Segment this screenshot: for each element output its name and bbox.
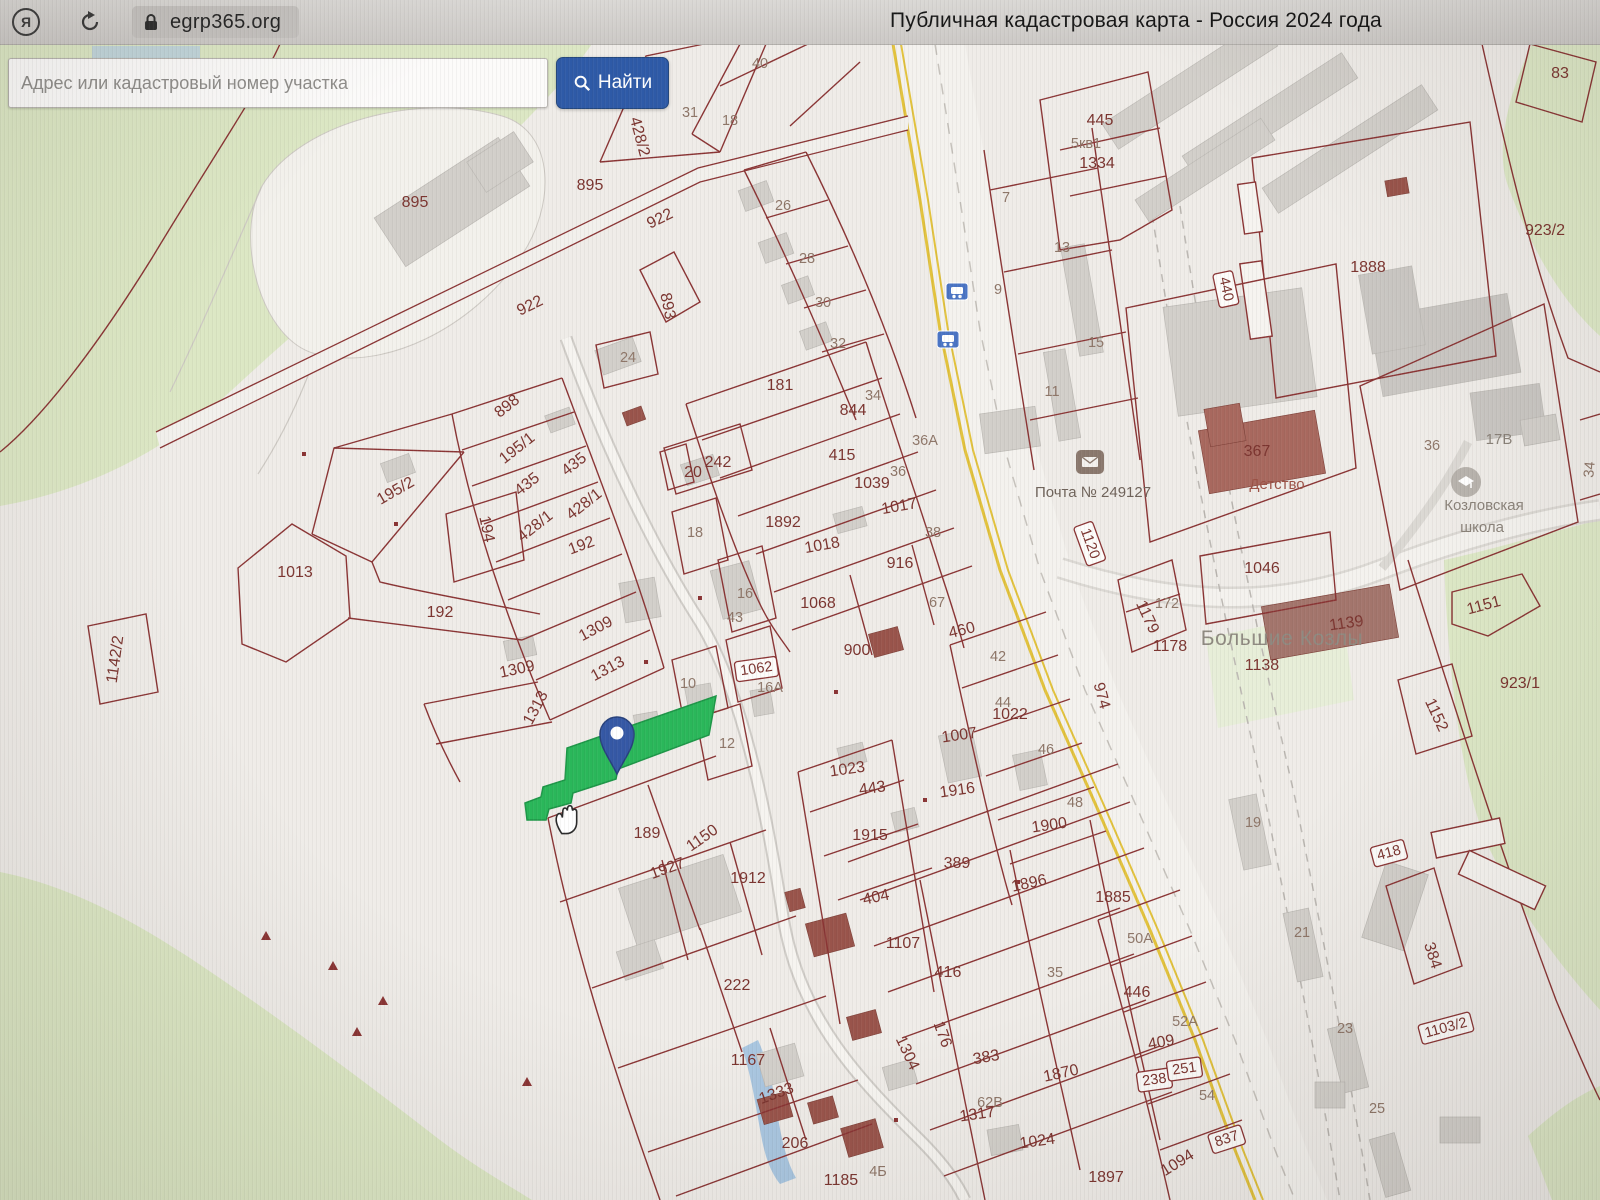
map-label: 36 bbox=[890, 464, 906, 480]
map-label: 34 bbox=[1581, 461, 1598, 478]
map-label: 1138 bbox=[1245, 657, 1280, 674]
map-label: 31 bbox=[682, 105, 698, 121]
map-label: 67 bbox=[929, 595, 945, 611]
map-label: 206 bbox=[782, 1135, 809, 1152]
map-label: 23 bbox=[1337, 1021, 1353, 1037]
map-label: 189 bbox=[634, 825, 661, 842]
map-label: 445 bbox=[1087, 112, 1114, 129]
map-label: 1039 bbox=[854, 475, 890, 492]
cadastral-map[interactable]: 403118428/289589592292289326283032241813… bbox=[0, 0, 1600, 1200]
map-label: 172 bbox=[1155, 596, 1179, 612]
map-label: 1178 bbox=[1153, 638, 1188, 655]
map-label: 1107 bbox=[886, 935, 921, 952]
map-label: 25 bbox=[1369, 1101, 1385, 1117]
screenshot-stage: 403118428/289589592292289326283032241813… bbox=[0, 0, 1600, 1200]
map-label: 54 bbox=[1199, 1088, 1215, 1104]
map-label: 7 bbox=[1002, 190, 1010, 206]
url-text: egrp365.org bbox=[170, 11, 281, 34]
search-button-label: Найти bbox=[598, 72, 652, 94]
address-bar[interactable]: egrp365.org bbox=[132, 6, 299, 38]
map-label: 16 bbox=[737, 586, 753, 602]
map-label: 916 bbox=[887, 555, 914, 572]
map-label: 416 bbox=[935, 964, 962, 981]
map-label: 42 bbox=[990, 649, 1006, 665]
map-label: 181 bbox=[767, 377, 794, 394]
map-label: 238 bbox=[1141, 1070, 1167, 1089]
post-office-icon bbox=[1076, 450, 1104, 474]
map-label: 52А bbox=[1172, 1014, 1198, 1030]
search-button[interactable]: Найти bbox=[556, 57, 669, 109]
map-label: 1892 bbox=[765, 514, 801, 531]
map-label: 1013 bbox=[277, 564, 313, 581]
map-label: 46 bbox=[1038, 742, 1054, 758]
school-icon bbox=[1451, 467, 1481, 497]
map-label: 40 bbox=[752, 56, 768, 72]
map-label: 9 bbox=[994, 282, 1002, 298]
map-label: 35 bbox=[1047, 965, 1063, 981]
map-label: 36А bbox=[912, 433, 938, 449]
map-label: 28 bbox=[799, 251, 815, 267]
map-label: 1912 bbox=[730, 870, 766, 887]
map-label: 50А bbox=[1127, 931, 1153, 947]
map-label: 48 bbox=[1067, 795, 1083, 811]
map-label: 1046 bbox=[1244, 560, 1280, 577]
map-label: 1022 bbox=[992, 706, 1028, 723]
map-label: 1334 bbox=[1079, 155, 1115, 172]
bus-stop-icon bbox=[937, 331, 959, 348]
search-icon bbox=[573, 74, 591, 92]
map-label: 895 bbox=[402, 194, 429, 211]
map-label: 923/1 bbox=[1500, 675, 1540, 692]
map-label: 24 bbox=[620, 350, 636, 366]
map-label: 415 bbox=[829, 447, 856, 464]
map-label: 4Б bbox=[869, 1164, 887, 1180]
map-label: школа bbox=[1460, 519, 1505, 536]
reload-icon[interactable] bbox=[78, 10, 102, 34]
map-label: 11 bbox=[1044, 384, 1059, 400]
map-label: 192 bbox=[427, 604, 454, 621]
browser-logo-icon[interactable]: Я bbox=[12, 8, 40, 36]
map-label: 18 bbox=[722, 113, 738, 129]
map-label: 1885 bbox=[1095, 889, 1131, 906]
map-label: 18 bbox=[687, 525, 703, 541]
map-label: 38 bbox=[925, 525, 941, 541]
map-label: 83 bbox=[1551, 65, 1569, 82]
map-label: Детство bbox=[1249, 476, 1304, 493]
map-label: 43 bbox=[727, 610, 743, 626]
map-label: 367 bbox=[1244, 443, 1271, 460]
map-label: 242 bbox=[705, 454, 732, 471]
map-label: 895 bbox=[577, 177, 604, 194]
map-label: 26 bbox=[775, 198, 791, 214]
map-label: 923/2 bbox=[1525, 222, 1565, 239]
page-title: Публичная кадастровая карта - Россия 202… bbox=[890, 9, 1382, 33]
map-label: 446 bbox=[1124, 984, 1151, 1001]
map-label: 389 bbox=[944, 855, 971, 872]
map-label: 251 bbox=[1171, 1059, 1197, 1078]
map-label: 1185 bbox=[824, 1172, 859, 1189]
map-label: 844 bbox=[840, 402, 867, 419]
map-label: 21 bbox=[1294, 925, 1310, 941]
browser-toolbar: Я egrp365.org Публичная кадастровая карт… bbox=[0, 0, 1600, 45]
map-label: 36 bbox=[1424, 438, 1440, 454]
map-label: 5кв1 bbox=[1071, 136, 1101, 152]
search-panel: Найти bbox=[8, 58, 669, 109]
map-label: 32 bbox=[830, 336, 846, 352]
map-label: 19 bbox=[1245, 815, 1261, 831]
lock-icon bbox=[142, 12, 160, 32]
map-label: 17В bbox=[1486, 431, 1513, 448]
map-label: 1915 bbox=[852, 827, 888, 844]
map-label: 222 bbox=[724, 977, 751, 994]
map-label: 13 bbox=[1054, 240, 1070, 256]
map-label: 30 bbox=[815, 295, 831, 311]
map-label: 1068 bbox=[800, 595, 836, 612]
search-input[interactable] bbox=[8, 58, 548, 108]
map-label: 1167 bbox=[731, 1052, 766, 1069]
bus-stop-icon bbox=[946, 283, 968, 300]
map-label: 15 bbox=[1088, 335, 1104, 351]
map-label: Почта № 249127 bbox=[1035, 484, 1151, 501]
map-label: 10 bbox=[680, 676, 696, 692]
map-label: 900 bbox=[844, 642, 871, 659]
map-label: 1897 bbox=[1088, 1169, 1124, 1186]
map-label: Козловская bbox=[1444, 497, 1524, 514]
map-label: 34 bbox=[865, 388, 881, 404]
map-label: 16А bbox=[757, 680, 783, 696]
map-label: 20 bbox=[684, 464, 702, 481]
map-label: 12 bbox=[719, 736, 735, 752]
map-label: 1888 bbox=[1350, 259, 1386, 276]
